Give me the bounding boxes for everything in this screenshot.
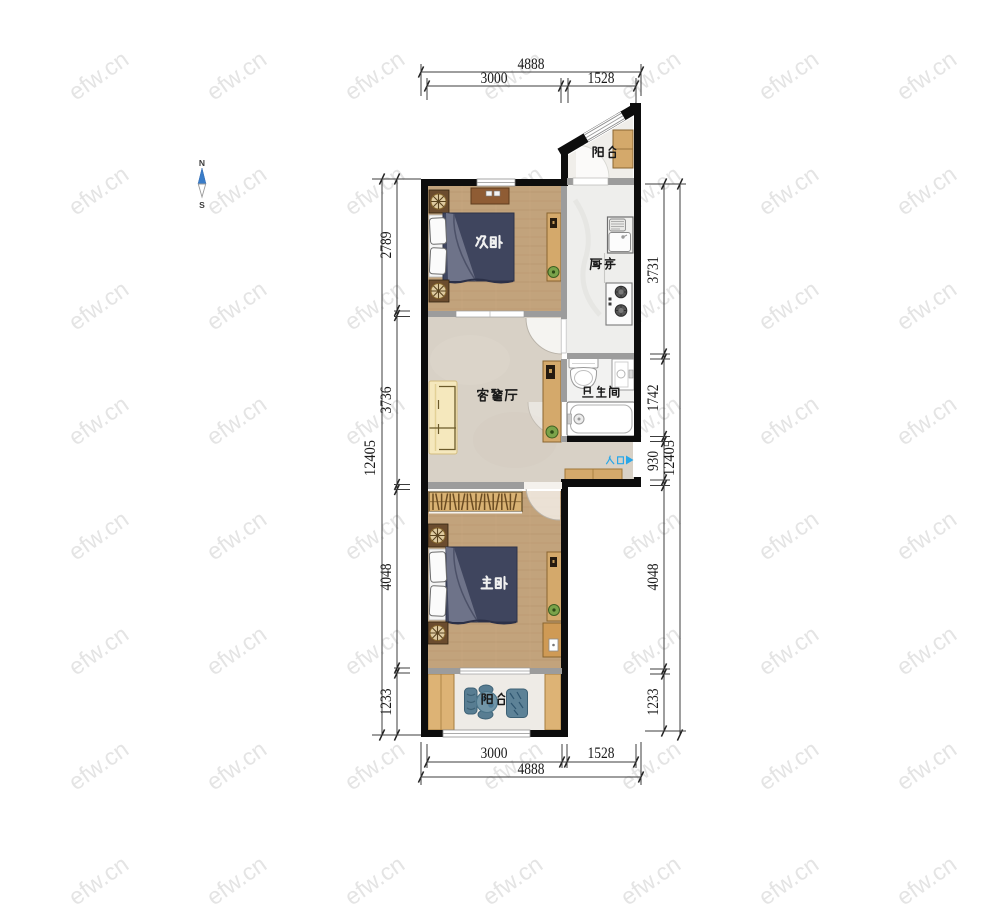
svg-text:3731: 3731 <box>645 257 662 284</box>
svg-text:12405: 12405 <box>661 440 678 476</box>
svg-text:3736: 3736 <box>378 386 395 413</box>
svg-text:4888: 4888 <box>518 761 545 778</box>
svg-text:930: 930 <box>645 451 662 471</box>
svg-text:4888: 4888 <box>518 56 545 73</box>
svg-text:3000: 3000 <box>481 745 508 762</box>
svg-text:N: N <box>199 158 205 168</box>
svg-text:S: S <box>199 200 205 210</box>
svg-text:4048: 4048 <box>378 563 395 590</box>
svg-text:1528: 1528 <box>588 745 615 762</box>
svg-text:4048: 4048 <box>645 563 662 590</box>
svg-text:1528: 1528 <box>588 70 615 87</box>
svg-text:1233: 1233 <box>645 688 662 715</box>
svg-text:2789: 2789 <box>378 231 395 258</box>
svg-text:12405: 12405 <box>362 440 379 476</box>
svg-text:1233: 1233 <box>378 688 395 715</box>
svg-text:3000: 3000 <box>481 70 508 87</box>
svg-text:1742: 1742 <box>645 385 662 412</box>
